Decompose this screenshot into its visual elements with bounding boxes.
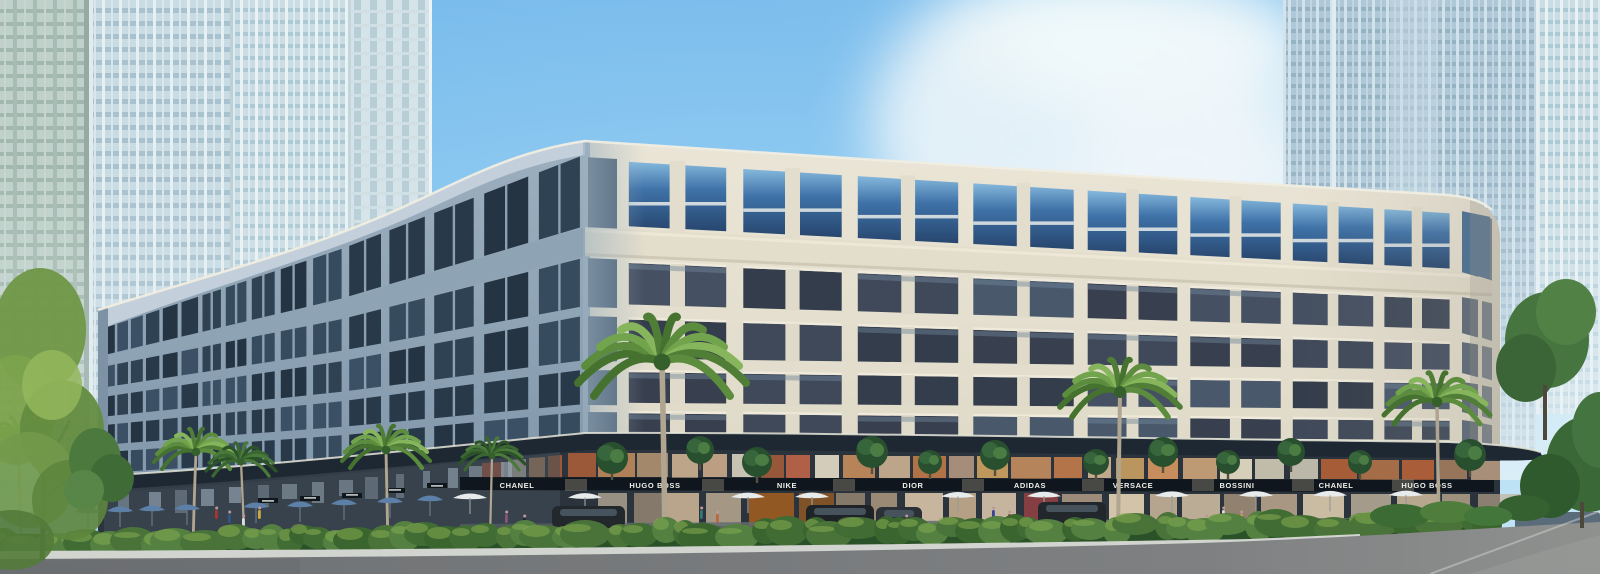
svg-text:HUGO BOSS: HUGO BOSS [1401, 481, 1452, 490]
svg-text:CHANEL: CHANEL [1319, 481, 1354, 490]
svg-text:CHANEL: CHANEL [500, 481, 535, 490]
svg-text:ADIDAS: ADIDAS [1014, 481, 1046, 490]
svg-text:NIKE: NIKE [777, 481, 797, 490]
svg-text:DIOR: DIOR [902, 481, 923, 490]
svg-text:BOSSINI: BOSSINI [1219, 481, 1254, 490]
svg-text:HUGO BOSS: HUGO BOSS [629, 481, 680, 490]
